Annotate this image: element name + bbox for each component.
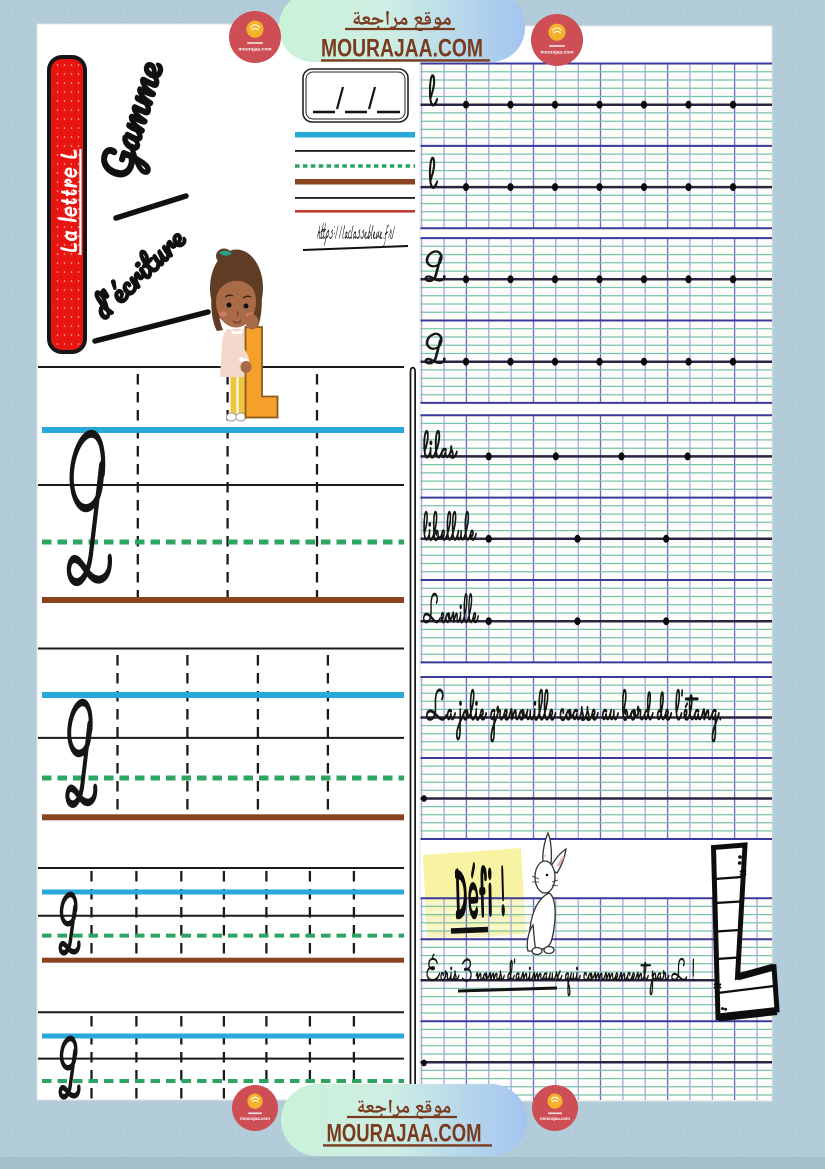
svg-text:mourajaa.com: mourajaa.com <box>240 1116 270 1121</box>
svg-text:mourajaa.com: mourajaa.com <box>540 1116 570 1121</box>
svg-text:mourajaa.com: mourajaa.com <box>238 47 272 53</box>
svg-text:MOURAJAA.COM: MOURAJAA.COM <box>321 34 483 62</box>
svg-text:MOURAJAA.COM: MOURAJAA.COM <box>327 1119 482 1147</box>
svg-text:mourajaa.com: mourajaa.com <box>540 50 574 56</box>
